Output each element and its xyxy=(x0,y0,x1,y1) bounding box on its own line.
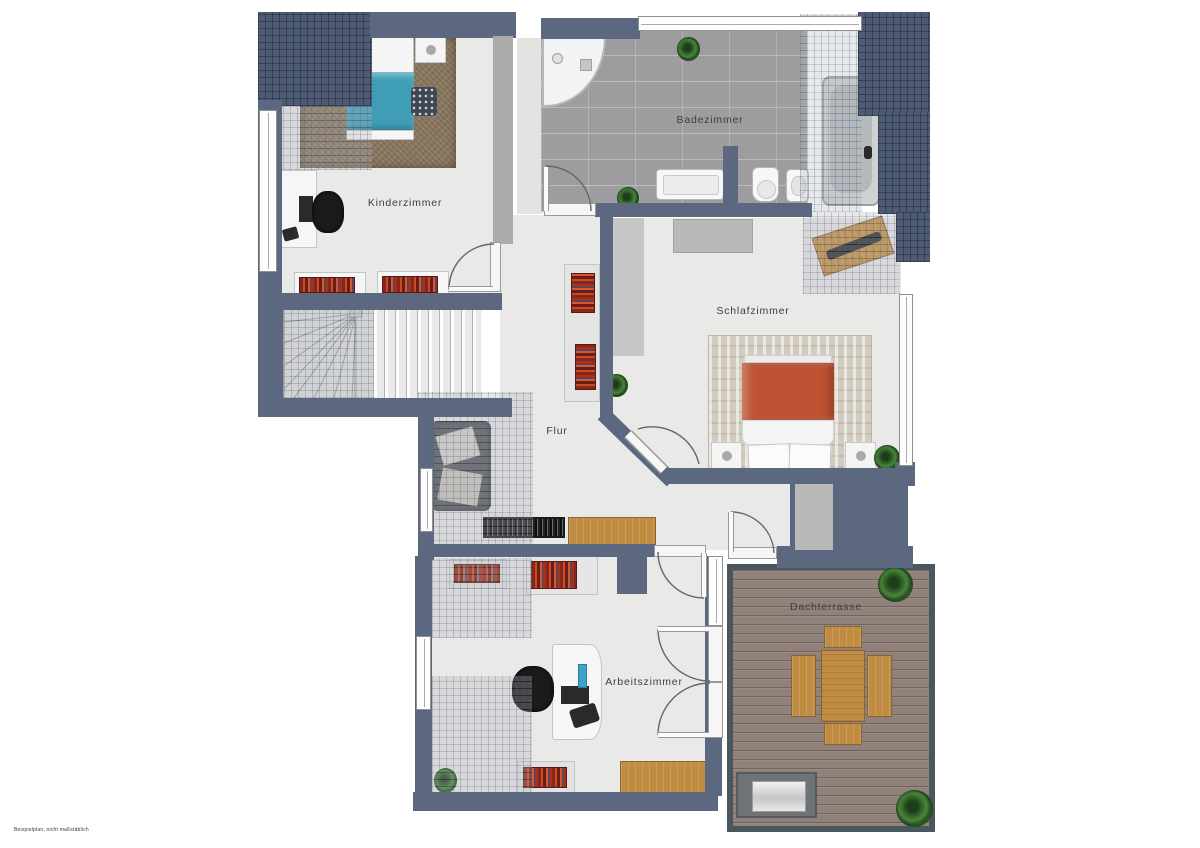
arbeitszimmer-books-n xyxy=(531,561,577,589)
wall-stairs-bottom xyxy=(258,398,512,417)
kinderzimmer-books-left xyxy=(299,277,355,293)
armchair-pillow-bottom xyxy=(438,468,483,506)
wall-arbeits-bottom xyxy=(413,792,718,811)
wall-kinder-east xyxy=(493,36,513,244)
roof-block-ne-lower xyxy=(878,112,930,214)
bath-sink xyxy=(656,169,724,200)
room-label-schlafzimmer: Schlafzimmer xyxy=(688,305,818,317)
roof-block-schlaf-corner xyxy=(896,212,930,262)
kinderzimmer-nightstand-right xyxy=(415,37,446,63)
room-label-arbeitszimmer: Arbeitszimmer xyxy=(579,676,709,688)
arbeitszimmer-books-nw xyxy=(454,564,500,583)
shower-head-icon xyxy=(552,53,563,64)
kinderzimmer-books-right xyxy=(382,276,438,293)
double-bed-headboard xyxy=(744,355,832,363)
schlafzimmer-nightstand-right xyxy=(845,442,876,469)
flur-sideboard xyxy=(568,517,656,547)
bed-pillow-left xyxy=(748,443,791,470)
window-arbeitszimmer-east xyxy=(708,556,723,626)
clothes-on-bench xyxy=(825,231,883,261)
schlafzimmer-nightstand-left xyxy=(711,442,742,469)
window-badezimmer-north xyxy=(638,16,862,31)
wall-stairs-top xyxy=(270,293,502,310)
wall-bad-bottom xyxy=(595,203,812,217)
staircase xyxy=(283,308,481,399)
wall-bad-stub xyxy=(723,146,738,208)
terrace-bench-left xyxy=(791,655,816,717)
window-flur-west xyxy=(420,468,433,532)
wall-block-se-inset xyxy=(795,484,833,550)
bath-sink-basin xyxy=(663,175,719,195)
door-frame-badezimmer xyxy=(544,203,596,216)
arbeitszimmer-books-s xyxy=(523,767,567,788)
terrace-plant-bottom xyxy=(896,790,933,827)
roof-block-ne-upper xyxy=(858,12,930,116)
toilet-seat xyxy=(757,180,776,199)
roof-block-nw xyxy=(258,12,372,106)
room-label-kinderzimmer: Kinderzimmer xyxy=(335,197,475,209)
bidet xyxy=(786,169,809,202)
armchair-pillow-top xyxy=(436,426,481,465)
french-door-frame-top xyxy=(708,626,723,682)
wall-arbeits-stub xyxy=(617,544,647,594)
terrace-plant-top xyxy=(878,567,913,602)
door-frame-dachterrasse xyxy=(728,547,777,559)
arbeitszimmer-sideboard xyxy=(620,761,710,794)
plan-disclaimer: Beispielplan, nicht maßstäblich xyxy=(14,827,89,833)
flur-niche-floor xyxy=(517,38,543,214)
door-frame-kinderzimmer xyxy=(490,242,501,292)
wall-schlaf-west xyxy=(600,215,613,420)
double-bed-blanket xyxy=(742,363,834,421)
arbeitszimmer-desk-chair xyxy=(512,666,554,712)
terrace-stool-top xyxy=(824,626,862,648)
french-door-frame-bottom xyxy=(708,682,723,738)
arbeitszimmer-plant xyxy=(434,768,457,793)
bed-pillow-right xyxy=(789,443,832,470)
double-bed-duvet xyxy=(742,420,834,445)
badezimmer-plant-top xyxy=(677,37,700,61)
flur-armchair xyxy=(431,421,491,511)
shower-drain-icon xyxy=(580,59,592,71)
window-arbeitszimmer-west xyxy=(416,636,431,710)
bidet-basin xyxy=(791,176,806,196)
wall-kinder-top xyxy=(370,12,516,38)
bathtub-faucet-icon xyxy=(864,146,872,159)
terrace-grill xyxy=(736,772,817,818)
terrace-table xyxy=(821,650,865,722)
window-schlafzimmer-east xyxy=(899,294,913,466)
door-frame-arbeitszimmer xyxy=(654,545,706,557)
staircase-winder-treads xyxy=(284,309,376,398)
terrace-stool-bottom xyxy=(824,723,862,745)
wall-bad-topleft xyxy=(541,18,640,39)
toilet xyxy=(752,167,779,202)
room-label-dachterrasse: Dachterrasse xyxy=(761,601,891,613)
floorplan: Kinderzimmer Badezimmer Schlafzimmer Flu… xyxy=(0,0,1200,848)
schlafzimmer-dresser xyxy=(673,219,753,253)
flur-books-top xyxy=(571,273,595,313)
grill-lid xyxy=(752,781,806,812)
wall-stairs-west xyxy=(258,293,283,417)
schlafzimmer-wall-strip xyxy=(610,218,644,356)
terrace-bench-right xyxy=(867,655,892,717)
flur-books-bottom xyxy=(575,344,596,390)
room-label-badezimmer: Badezimmer xyxy=(645,114,775,126)
staircase-straight-treads xyxy=(373,309,481,398)
kinderzimmer-monitor xyxy=(299,196,313,222)
flur-radiator xyxy=(483,517,565,538)
arbeitszimmer-monitor xyxy=(561,686,589,704)
kinderzimmer-cushion xyxy=(411,87,437,116)
room-label-flur: Flur xyxy=(522,425,592,437)
window-kinderzimmer-west xyxy=(259,110,277,272)
kinderzimmer-bed-foot xyxy=(346,130,414,140)
